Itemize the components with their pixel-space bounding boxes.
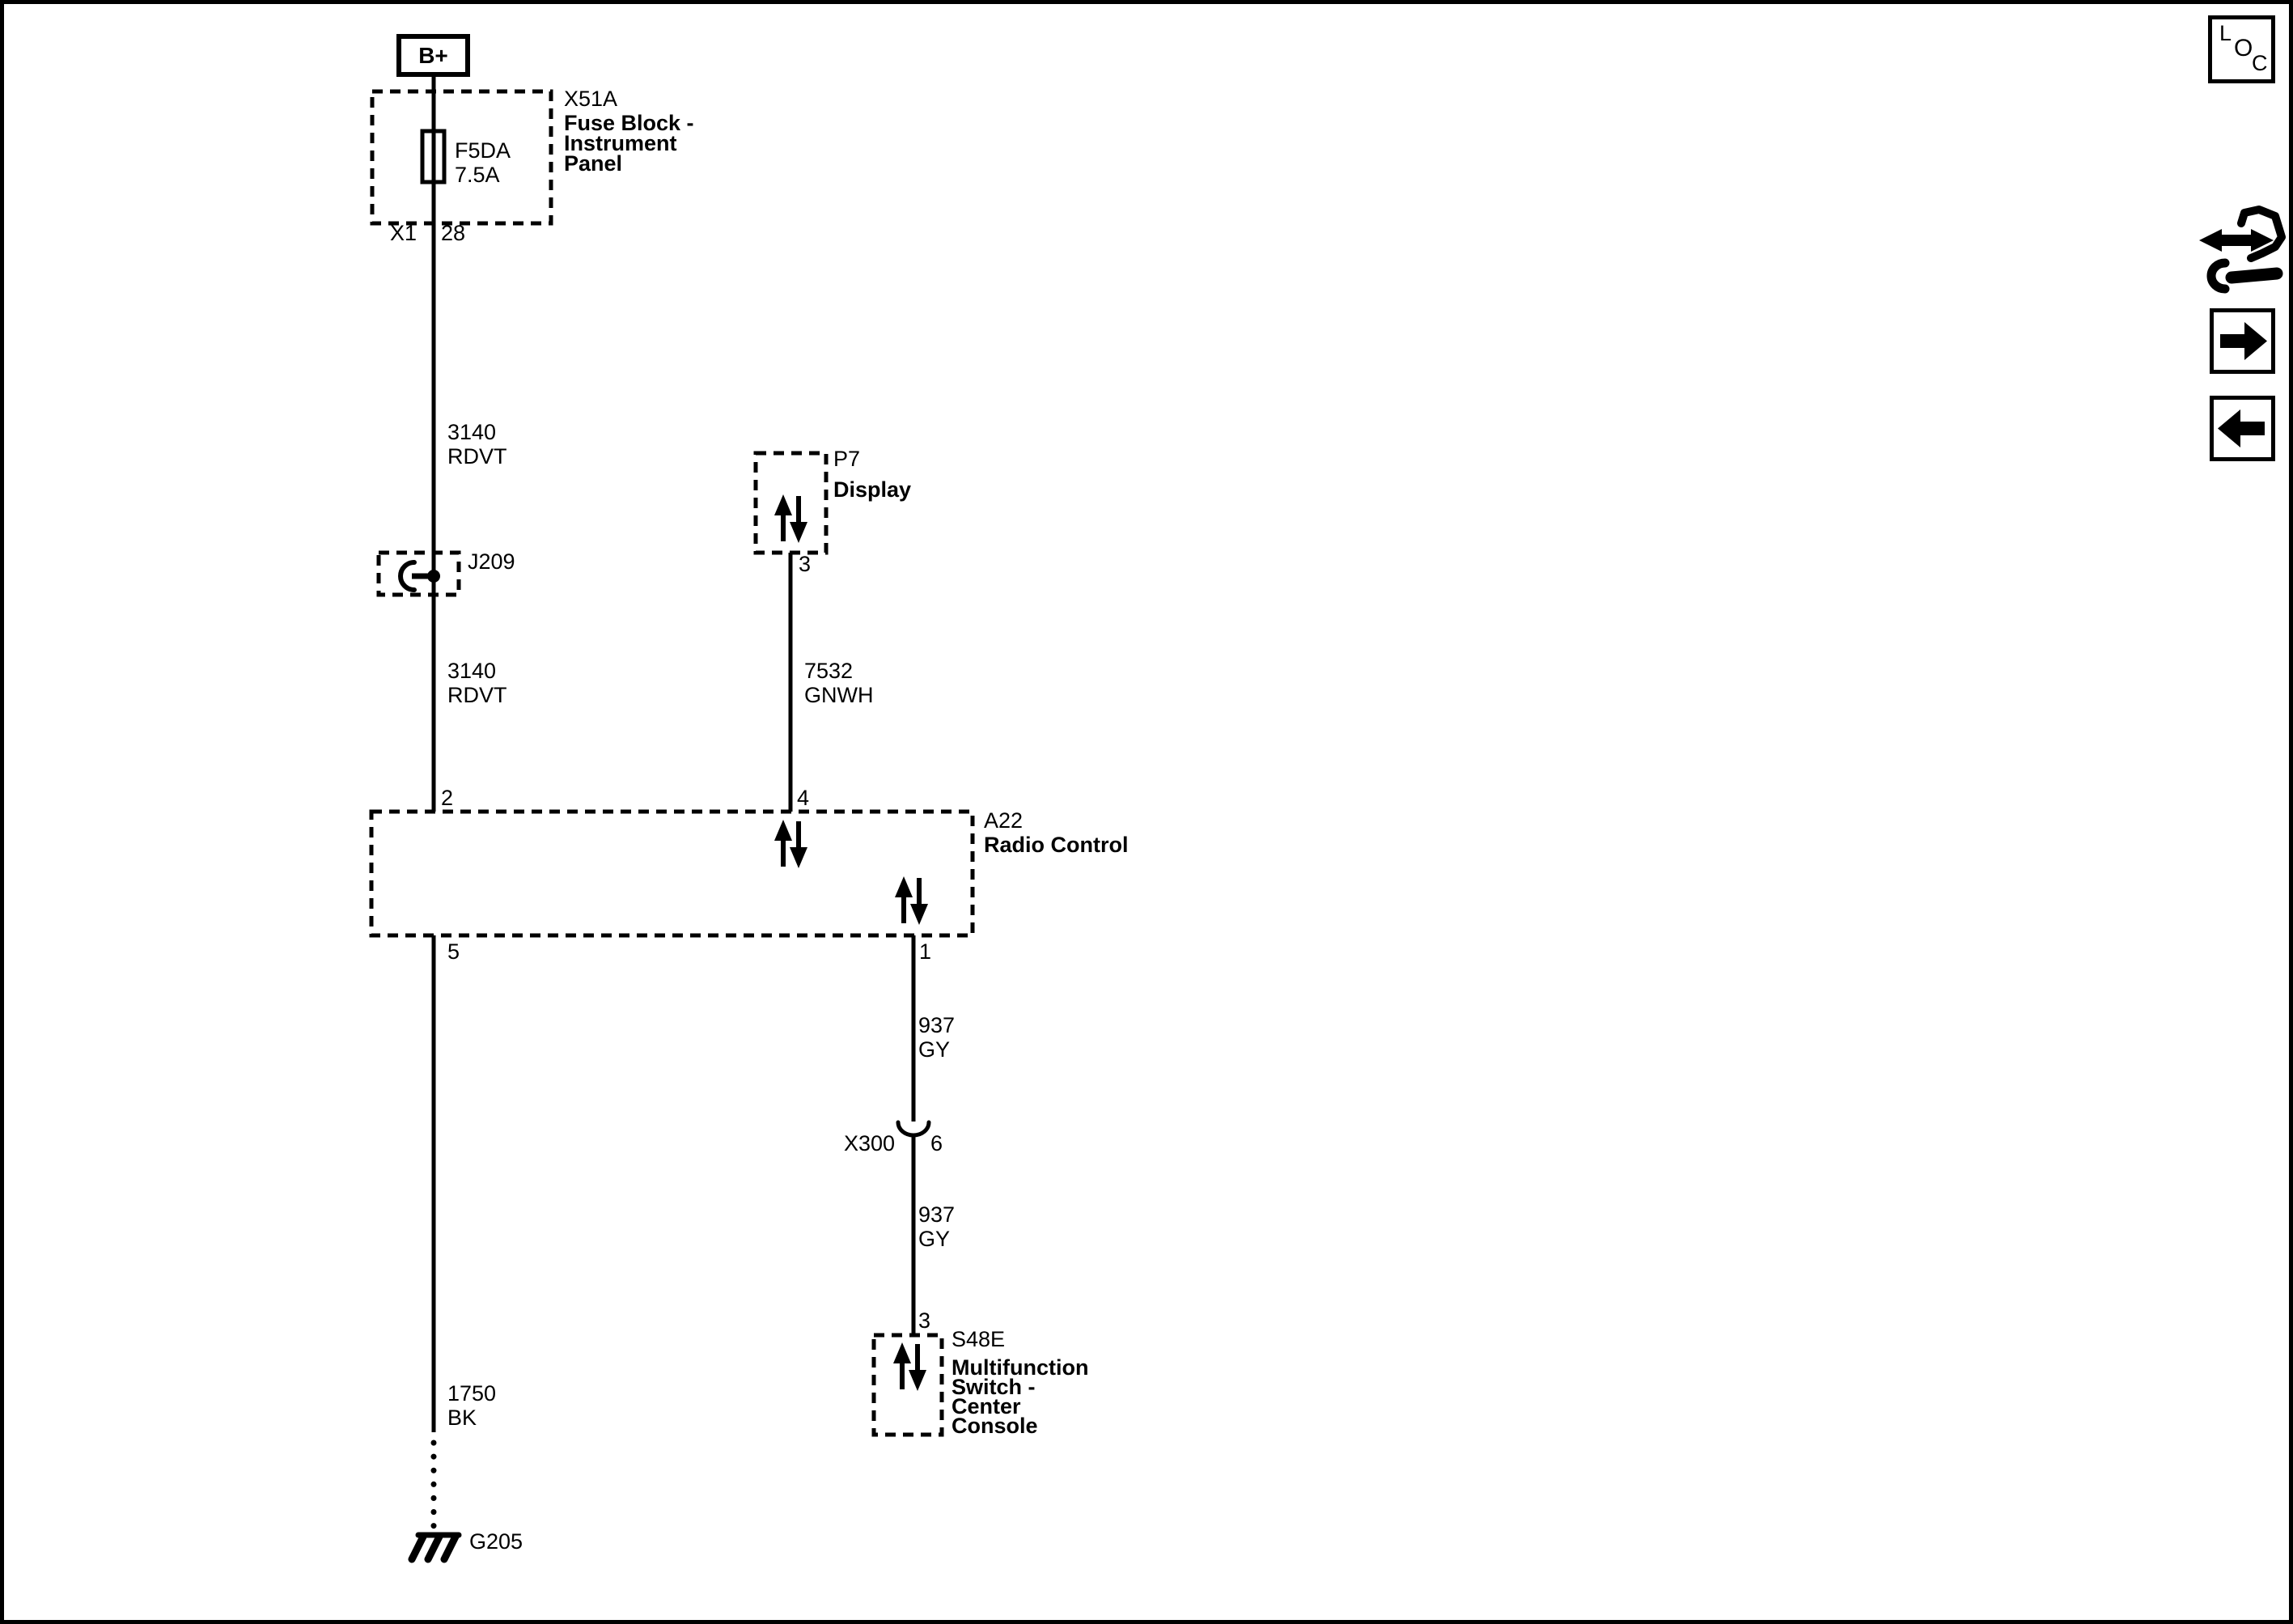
switch-serial-data-arrows — [893, 1342, 926, 1391]
radio-pin-5: 5 — [447, 939, 460, 964]
fuse-block-id: X51A — [564, 87, 617, 111]
radio-control-outline — [371, 812, 973, 935]
wire-color: GY — [918, 1227, 955, 1251]
display-name: Display — [833, 477, 911, 502]
radio-control-id: A22 — [984, 808, 1023, 833]
splice-id: J209 — [468, 549, 515, 574]
fuse-block-name-line3: Panel — [564, 154, 694, 174]
wire-label-937-upper: 937 GY — [918, 1013, 955, 1062]
fuse-block-connector-id: X1 — [390, 221, 417, 245]
ground-id: G205 — [469, 1529, 523, 1554]
forward-button[interactable] — [2210, 308, 2275, 374]
circuit-number: 937 — [918, 1013, 955, 1037]
repair-instructions-button[interactable] — [2193, 205, 2291, 303]
display-outline — [756, 453, 826, 553]
radio-pin-4: 4 — [797, 786, 809, 810]
loc-letter-l: L — [2219, 23, 2232, 45]
radio-pin-1: 1 — [919, 939, 931, 964]
multifunction-switch-name: Multifunction Switch - Center Console — [952, 1358, 1088, 1435]
fuse-id: F5DA — [455, 138, 511, 163]
circuit-number: 3140 — [447, 420, 507, 444]
loc-badge[interactable]: L O C — [2208, 15, 2275, 83]
fuse-label: F5DA 7.5A — [455, 138, 511, 187]
left-arrow-icon — [2214, 400, 2271, 457]
wrench-double-arrow-icon — [2193, 205, 2291, 303]
fuse-block-name: Fuse Block - Instrument Panel — [564, 113, 694, 174]
wire-color: GY — [918, 1037, 955, 1062]
multifunction-switch-id: S48E — [952, 1327, 1005, 1351]
diagram-line-art — [4, 4, 2293, 1624]
fuse-block-pin-28: 28 — [441, 221, 465, 245]
wire-color: GNWH — [804, 683, 873, 707]
wire-label-3140-upper: 3140 RDVT — [447, 420, 507, 469]
display-serial-data-arrows — [774, 494, 807, 543]
circuit-number: 3140 — [447, 659, 507, 683]
fuse-rating: 7.5A — [455, 163, 511, 187]
inline-connector-symbol — [898, 1122, 929, 1135]
radio-serial-data-arrows-top — [774, 820, 807, 868]
wire-label-7532: 7532 GNWH — [804, 659, 873, 707]
radio-pin-2: 2 — [441, 786, 453, 810]
wire-color: BK — [447, 1406, 496, 1430]
inline-connector-id: X300 — [844, 1131, 895, 1155]
switch-pin-3: 3 — [918, 1308, 930, 1333]
display-id: P7 — [833, 447, 860, 471]
battery-feed-label: B+ — [399, 36, 468, 74]
wire-label-1750: 1750 BK — [447, 1381, 496, 1430]
display-pin-3: 3 — [799, 552, 811, 576]
radio-control-name: Radio Control — [984, 833, 1128, 857]
wiring-diagram-page: B+ X51A Fuse Block - Instrument Panel F5… — [0, 0, 2293, 1624]
radio-serial-data-arrows-right — [895, 876, 928, 925]
inline-connector-pin-6: 6 — [930, 1131, 943, 1155]
circuit-number: 1750 — [447, 1381, 496, 1406]
multifunction-switch-outline — [874, 1335, 942, 1435]
loc-letter-c: C — [2252, 53, 2268, 74]
switch-name-line4: Console — [952, 1416, 1088, 1435]
ground-symbol — [412, 1535, 459, 1559]
wire-label-937-lower: 937 GY — [918, 1202, 955, 1251]
circuit-number: 937 — [918, 1202, 955, 1227]
wire-color: RDVT — [447, 444, 507, 469]
circuit-number: 7532 — [804, 659, 873, 683]
loc-letter-o: O — [2234, 37, 2253, 59]
wire-color: RDVT — [447, 683, 507, 707]
wire-label-3140-lower: 3140 RDVT — [447, 659, 507, 707]
back-button[interactable] — [2210, 396, 2275, 461]
right-arrow-icon — [2214, 312, 2271, 370]
